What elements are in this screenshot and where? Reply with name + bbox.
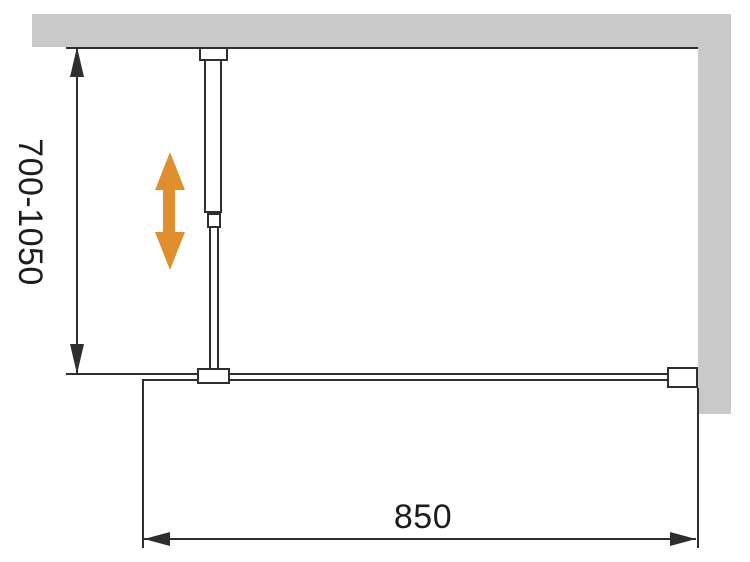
width-dimension-line bbox=[144, 538, 696, 540]
wall-mount-bracket bbox=[667, 367, 698, 388]
adjust-arrow-up-head-icon bbox=[155, 152, 185, 190]
width-label: 850 bbox=[348, 500, 498, 534]
ceiling-wall bbox=[32, 14, 731, 47]
ceiling-edge-line bbox=[66, 47, 698, 49]
support-post-lower-rod bbox=[209, 228, 219, 368]
height-dimension-line bbox=[76, 48, 78, 374]
dimension-arrow-left-icon bbox=[144, 532, 170, 546]
dimension-arrow-down-icon bbox=[70, 344, 84, 374]
side-wall bbox=[698, 14, 731, 414]
installation-diagram: 700-1050 850 bbox=[0, 0, 750, 562]
post-to-glass-bracket bbox=[197, 368, 230, 384]
width-extension-line-left bbox=[142, 381, 144, 548]
adjust-arrow-shaft bbox=[163, 188, 175, 234]
dimension-arrow-up-icon bbox=[70, 47, 84, 77]
height-range-label: 700-1050 bbox=[12, 102, 48, 322]
dimension-arrow-right-icon bbox=[670, 532, 696, 546]
support-post-adjuster-collar bbox=[207, 213, 221, 228]
ceiling-bracket bbox=[199, 47, 228, 61]
support-post-upper-tube bbox=[204, 59, 222, 213]
glass-panel-top-line bbox=[66, 373, 668, 375]
width-extension-line-right bbox=[697, 388, 699, 548]
adjust-arrow-down-head-icon bbox=[155, 232, 185, 270]
